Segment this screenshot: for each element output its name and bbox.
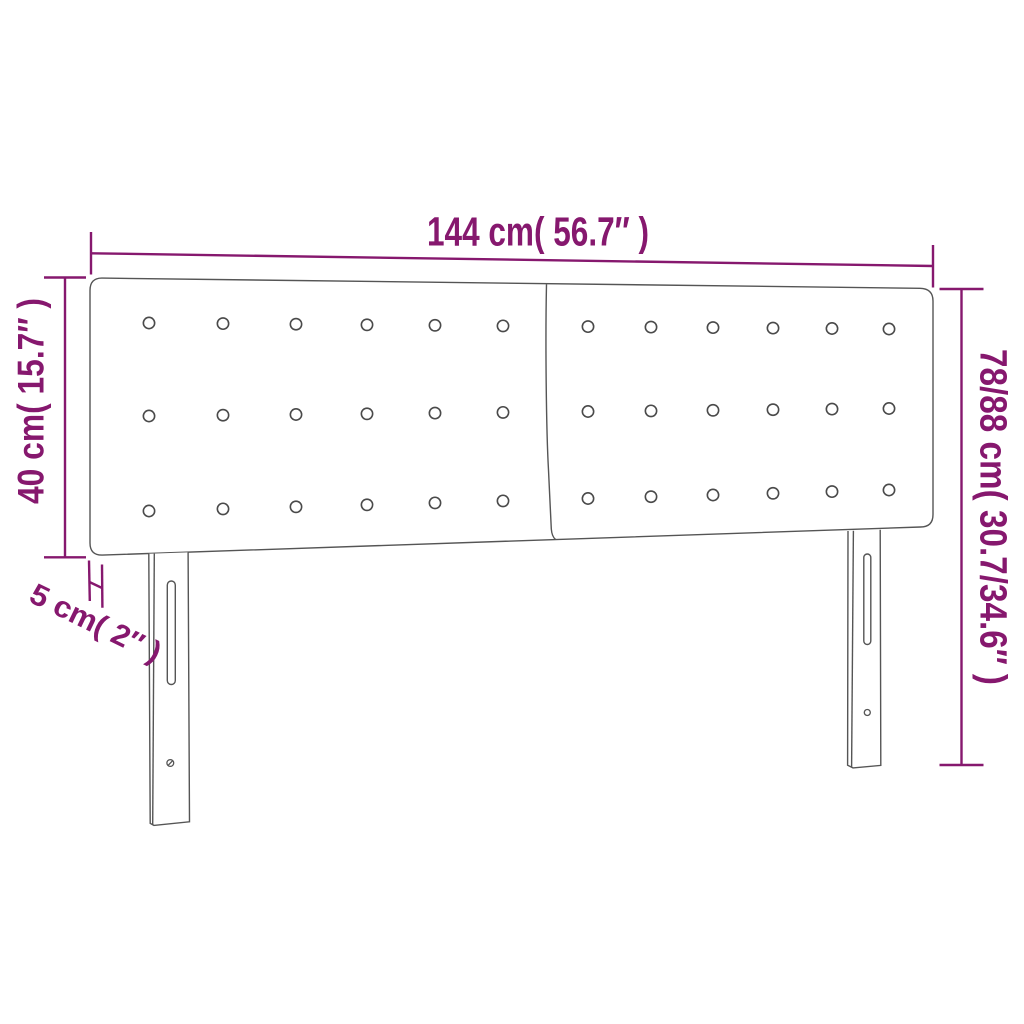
svg-text:40 cm( 15.7″ ): 40 cm( 15.7″ ): [11, 298, 52, 504]
svg-text:144 cm( 56.7″ ): 144 cm( 56.7″ ): [427, 209, 649, 255]
svg-text:78/88 cm( 30.7/34.6″ ): 78/88 cm( 30.7/34.6″ ): [972, 349, 1014, 685]
